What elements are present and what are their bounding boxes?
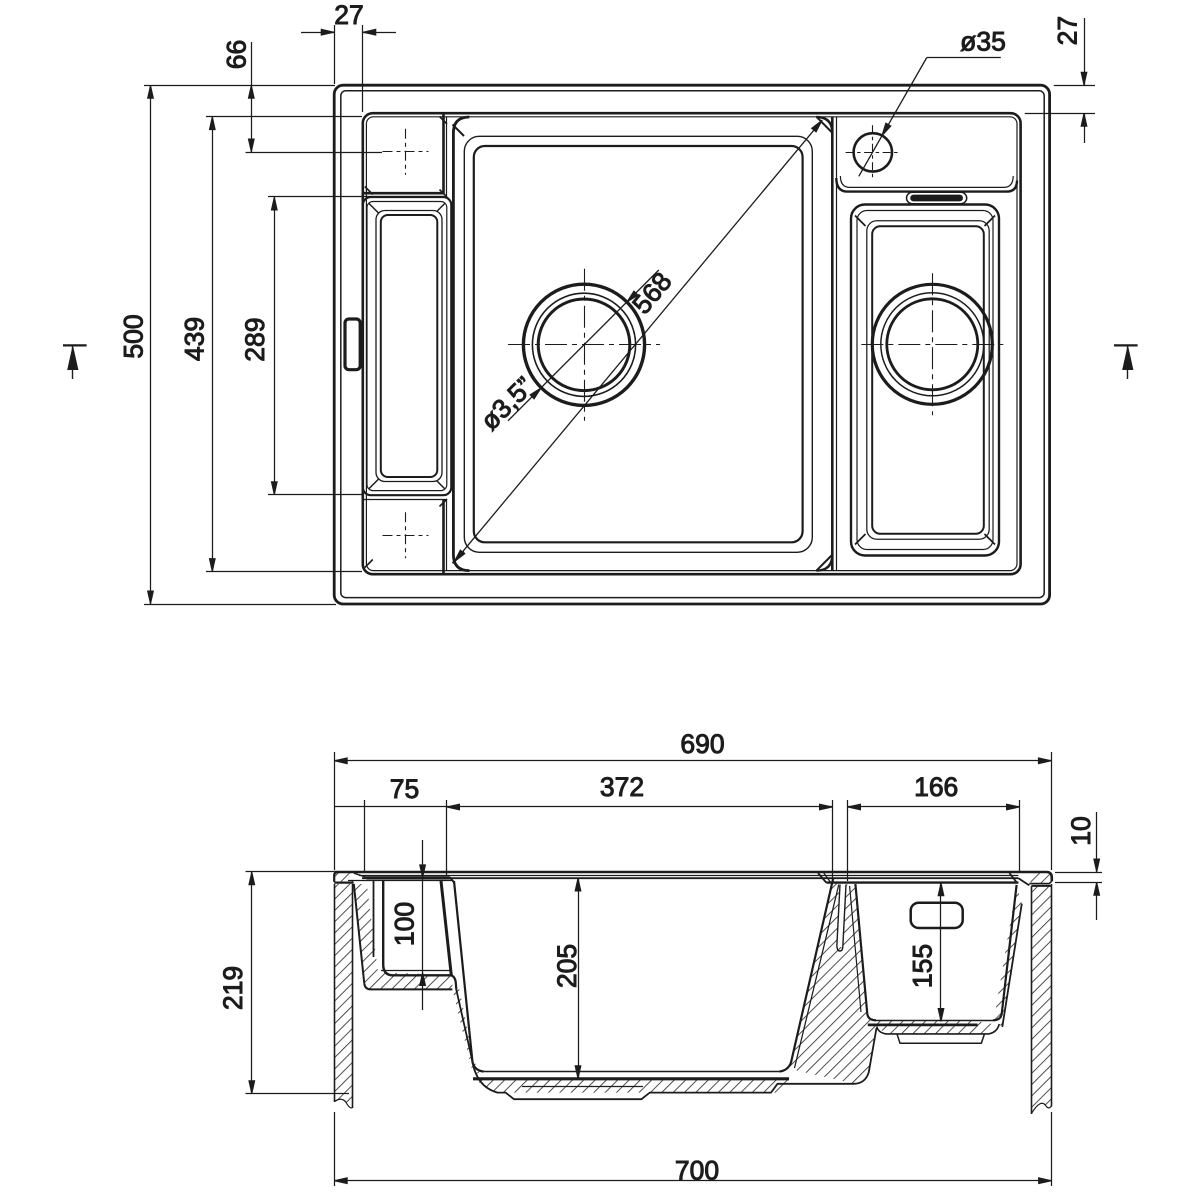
svg-text:690: 690 — [680, 729, 724, 759]
svg-text:66: 66 — [222, 40, 252, 69]
svg-text:75: 75 — [390, 774, 419, 804]
svg-text:205: 205 — [552, 944, 582, 988]
svg-text:166: 166 — [914, 772, 958, 802]
svg-text:500: 500 — [119, 314, 149, 358]
svg-text:219: 219 — [218, 966, 248, 1010]
svg-text:27: 27 — [334, 0, 363, 30]
svg-text:27: 27 — [1053, 16, 1083, 45]
svg-text:289: 289 — [240, 317, 270, 361]
svg-text:100: 100 — [390, 902, 420, 946]
svg-text:439: 439 — [180, 317, 210, 361]
svg-text:10: 10 — [1066, 816, 1096, 845]
svg-text:155: 155 — [908, 944, 938, 988]
svg-text:372: 372 — [600, 772, 644, 802]
svg-text:700: 700 — [675, 1156, 719, 1186]
svg-text:ø35: ø35 — [960, 27, 1006, 57]
